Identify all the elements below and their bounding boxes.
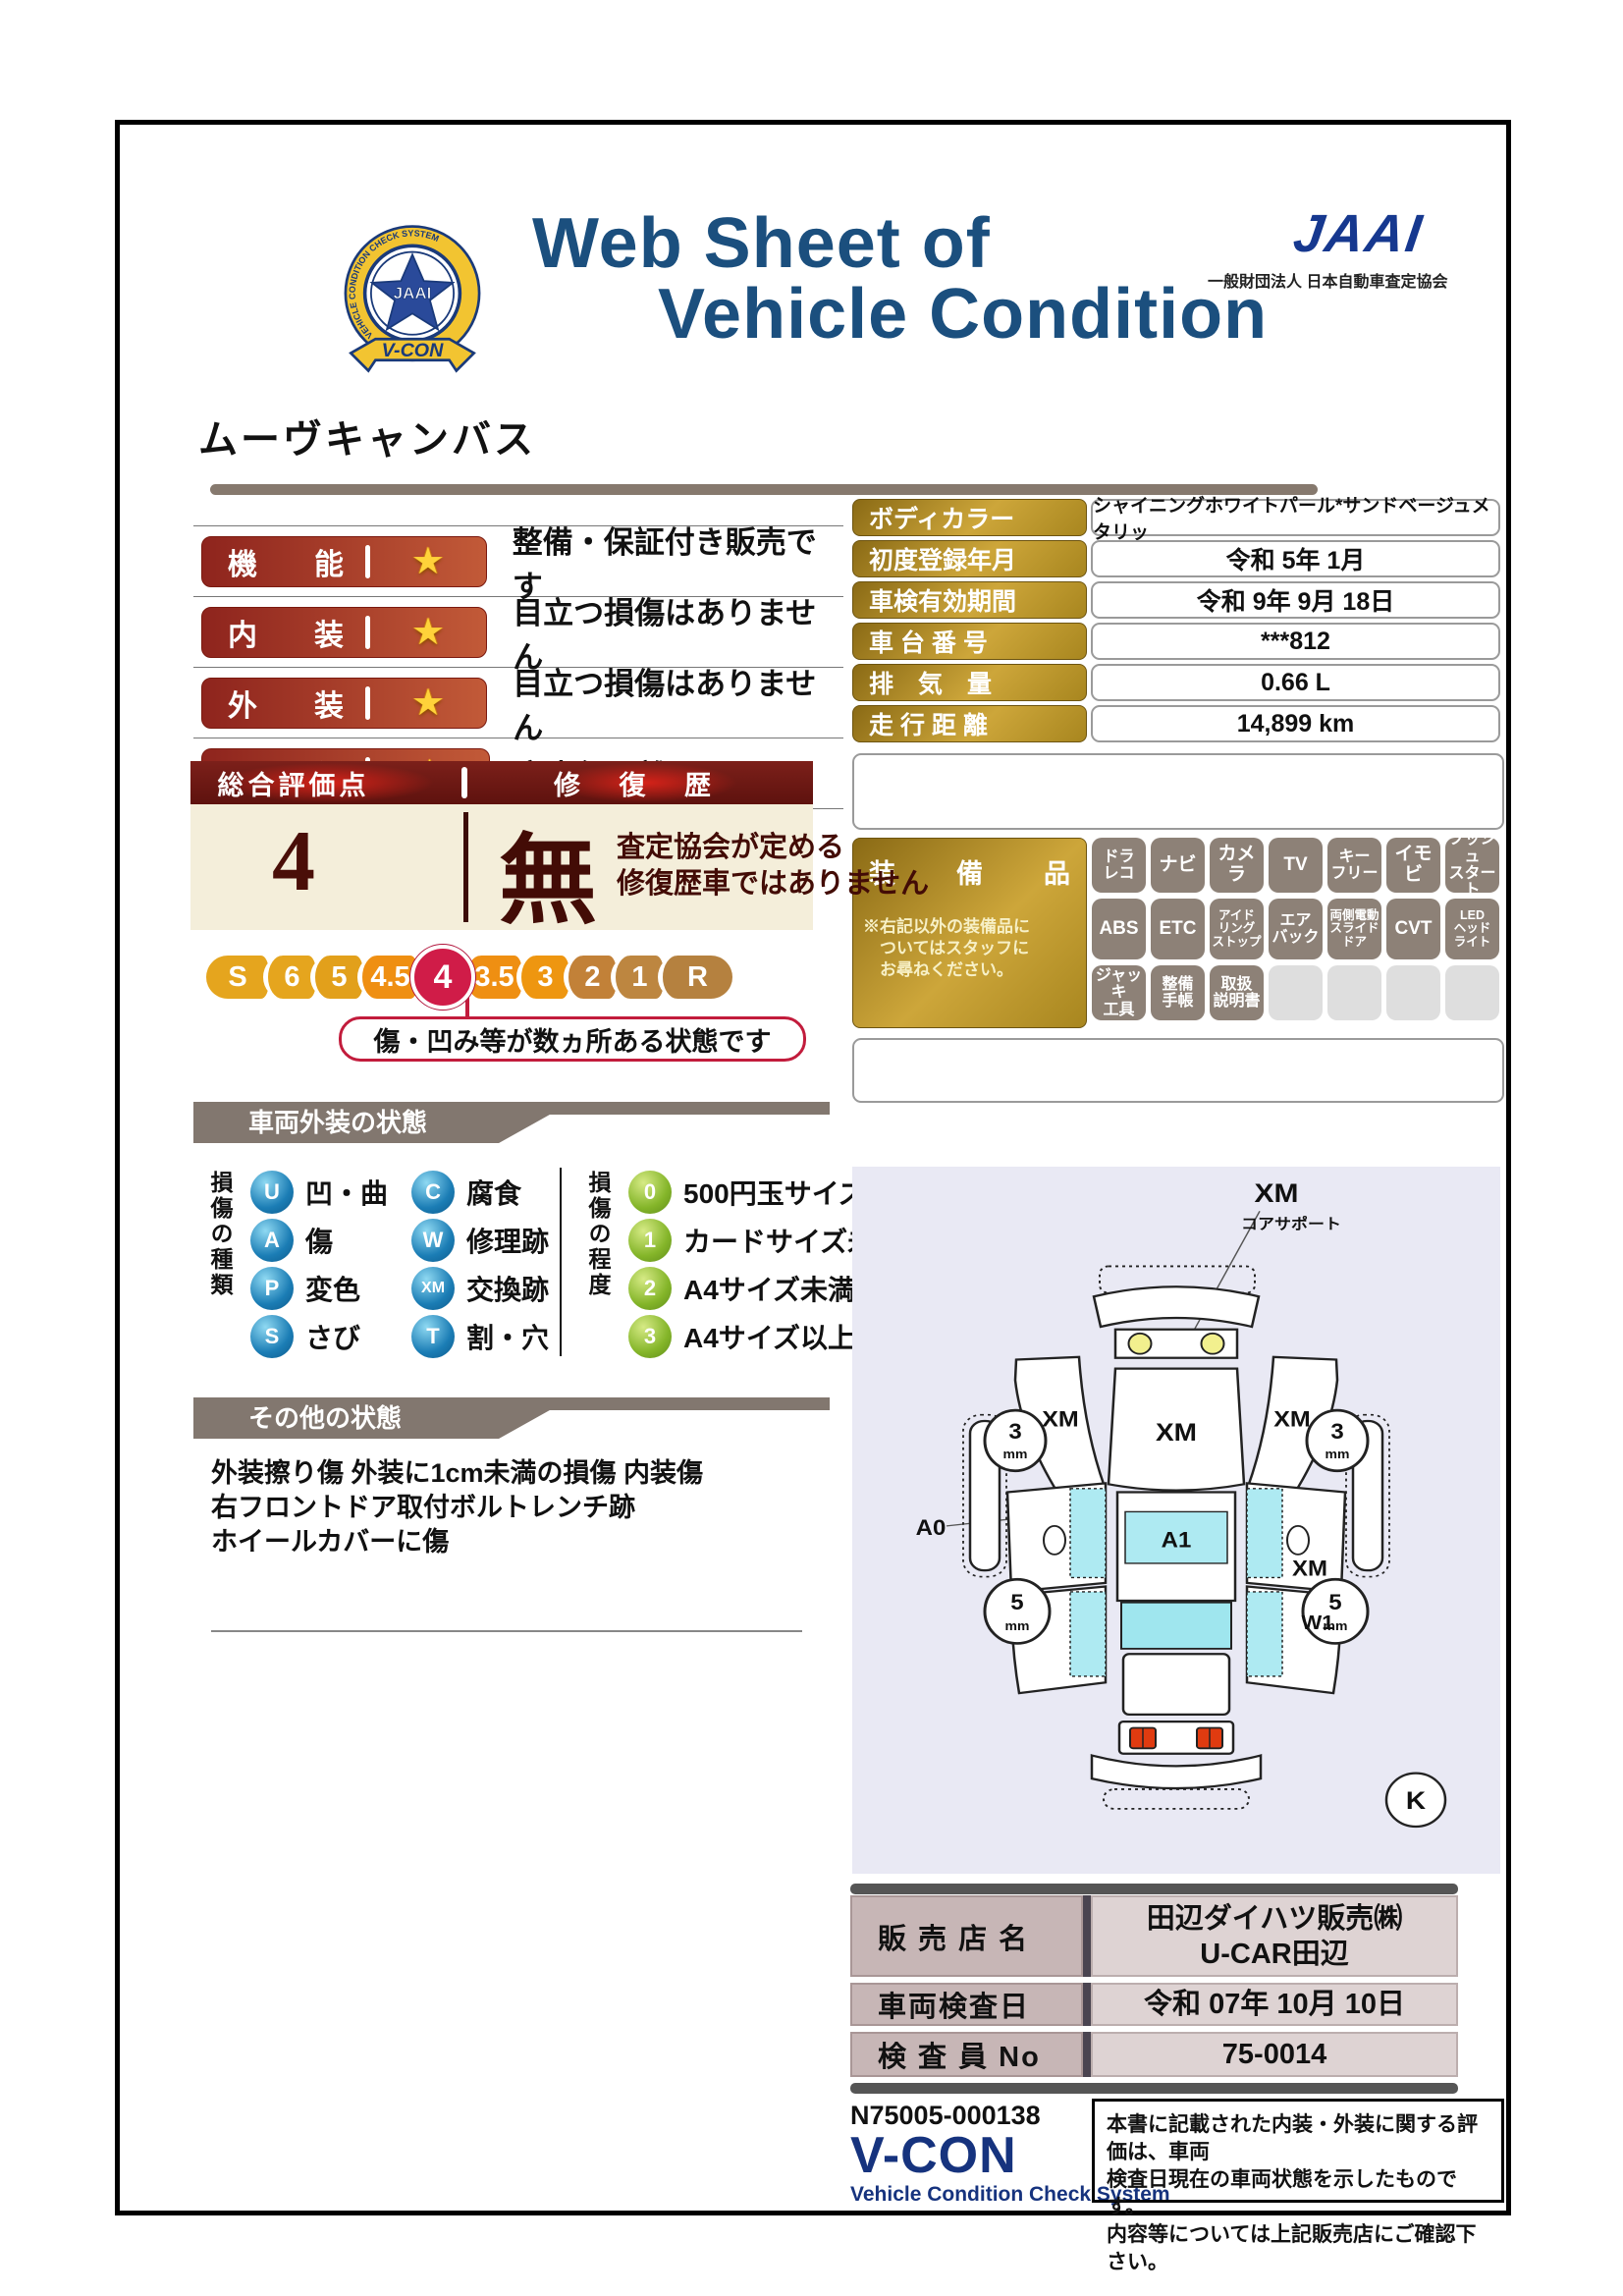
legend-text: さび [305, 1317, 360, 1356]
rating-label-char: 外 [228, 682, 257, 725]
equipment-badge-line: ジャッキ [1092, 967, 1146, 1002]
legend-code-icon: P [250, 1267, 294, 1310]
svg-text:mm: mm [1003, 1448, 1028, 1461]
rating-badge: 外装★ [201, 678, 487, 729]
equipment-grid: ドラレコナビカメラTVキーフリーイモビプッシュスタートABSETCアイドリングス… [1092, 838, 1500, 1020]
equipment-badge: TV [1269, 838, 1323, 893]
rating-label-char: 内 [228, 611, 257, 654]
equipment-badge-line: 説明書 [1213, 993, 1260, 1010]
equipment-badge: エアバック [1269, 899, 1323, 959]
roof-front-mark: A1 [1162, 1528, 1192, 1553]
dealer-row-label: 販 売 店 名 [850, 1895, 1083, 1977]
legend-code-icon: T [411, 1315, 455, 1358]
legend-divider [560, 1168, 562, 1356]
core-support-label: コアサポート [1241, 1215, 1341, 1232]
equipment-badge-line: カメラ [1210, 845, 1264, 885]
legend-text: A4サイズ以上 [683, 1317, 855, 1356]
score-callout: 傷・凹み等が数ヵ所ある状態です [339, 1016, 806, 1062]
legend-code-icon: U [250, 1171, 294, 1214]
equipment-badge: アイドリングストップ [1210, 899, 1264, 959]
rating-label-char: 装 [314, 682, 344, 725]
rating-badge: 機能★ [201, 536, 487, 587]
damage-type-label: 損傷の種類 [203, 1171, 237, 1357]
headlight-icon [1129, 1334, 1152, 1354]
rating-badge: 内装★ [201, 607, 487, 658]
svg-text:3: 3 [1330, 1419, 1343, 1444]
dealer-value-line: 田辺ダイハツ販売㈱ [1147, 1901, 1402, 1937]
equipment-badge-line: ストップ [1212, 936, 1261, 950]
equipment-badge: ドラレコ [1092, 838, 1146, 893]
corner-mark: K [1406, 1786, 1427, 1814]
jaai-logo: JAAI [1290, 203, 1428, 264]
equipment-badge-line: LED [1460, 909, 1485, 923]
legend-text: 割・穴 [466, 1317, 549, 1356]
other-section-header: その他の状態 [193, 1397, 830, 1439]
info-value: 令和 9年 9月 18日 [1091, 581, 1500, 619]
equipment-badge-line: ナビ [1159, 855, 1196, 876]
legend-item: XM交換跡 [411, 1264, 549, 1312]
dealer-row-value: 田辺ダイハツ販売㈱U-CAR田辺 [1091, 1895, 1458, 1977]
rating-label-char: 能 [314, 540, 344, 583]
legend-text: 交換跡 [466, 1269, 549, 1308]
equipment-badge-line: ヘッド [1454, 922, 1491, 936]
dealer-row-divider [1083, 2032, 1091, 2077]
equipment-slot-empty [1445, 965, 1499, 1020]
equipment-badge-line: TV [1283, 855, 1307, 876]
scale-segment: 6 [263, 956, 316, 999]
equipment-badge-line: 取扱 [1220, 976, 1252, 993]
info-label: 排 気 量 [852, 664, 1087, 701]
equipment-badge-line: ドラ [1103, 848, 1134, 865]
equipment-badge: ナビ [1151, 838, 1205, 893]
rating-description: 目立つ損傷はありません [513, 659, 843, 747]
equipment-badge: 整備手帳 [1151, 965, 1205, 1020]
scale-segment: 2 [564, 956, 617, 999]
info-row: 走 行 距 離14,899 km [852, 705, 1500, 742]
legend-code-icon: C [411, 1171, 455, 1214]
equipment-badge: CVT [1386, 899, 1440, 959]
damage-type-legend: U凹・曲A傷P変色SさびC腐食W修理跡XM交換跡T割・穴 [250, 1168, 549, 1360]
vcon-badge-logo: VEHICLE CONDITION CHECK SYSTEM JAAI V-CO… [324, 223, 501, 392]
dealer-value-line: U-CAR田辺 [1200, 1937, 1348, 1972]
right-side-mark: XM [1292, 1557, 1327, 1581]
dealer-row: 車両検査日令和 07年 10月 10日 [850, 1983, 1458, 2026]
equipment-badge: LEDヘッドライト [1445, 899, 1499, 959]
equipment-badge-line: 両側電動 [1329, 909, 1379, 923]
remarks-empty-box [852, 753, 1504, 830]
repair-history-label: 修 復 歴 [467, 764, 813, 802]
equipment-badge-line: CVT [1395, 919, 1433, 940]
equipment-badge: プッシュスタート [1445, 838, 1499, 893]
rating-label: 外装 [228, 682, 344, 725]
star-icon: ★ [370, 681, 486, 725]
car-damage-diagram: XM コアサポート XM XM XM A1 XM W1 A0 3 mm 3 mm… [852, 1167, 1500, 1874]
legend-item: Sさび [250, 1312, 388, 1360]
equipment-badge-line: スタート [1445, 865, 1499, 900]
equipment-badge-line: キー [1338, 848, 1370, 865]
svg-text:mm: mm [1324, 1618, 1348, 1632]
equipment-badge-line: ABS [1099, 919, 1138, 940]
vcon-wordmark: V-CON [850, 2126, 1017, 2185]
footer-note-box: 本書に記載された内装・外装に関する評価は、車両 検査日現在の車両状態を示したもの… [1092, 2099, 1504, 2203]
scale-segment: 5 [310, 956, 363, 999]
scale-segment: 4.5 [357, 956, 418, 999]
equipment-note: ※右記以外の装備品に ついてはスタッフに お尋ねください。 [863, 916, 1078, 981]
equipment-badge: カメラ [1210, 838, 1264, 893]
equipment-badge: ABS [1092, 899, 1146, 959]
svg-text:5: 5 [1328, 1590, 1342, 1614]
legend-text: 修理跡 [466, 1221, 549, 1260]
dealer-row: 販 売 店 名田辺ダイハツ販売㈱U-CAR田辺 [850, 1895, 1458, 1977]
legend-code-icon: S [250, 1315, 294, 1358]
equipment-badge: ジャッキ工具 [1092, 965, 1146, 1020]
dealer-row-divider [1083, 1895, 1091, 1977]
equipment-badge-line: プッシュ [1445, 831, 1499, 865]
legend-item: P変色 [250, 1264, 388, 1312]
equipment-slot-empty [1327, 965, 1381, 1020]
svg-text:mm: mm [1325, 1448, 1350, 1461]
page-title-line1: Web Sheet of [532, 203, 991, 284]
badge-star-text: JAAI [394, 284, 432, 302]
damage-degree-label: 損傷の程度 [581, 1171, 615, 1357]
equipment-badge-line: ドア [1342, 936, 1367, 950]
dealer-value-line: 令和 07年 10月 10日 [1144, 1987, 1405, 2022]
dealer-row-value: 75-0014 [1091, 2032, 1458, 2077]
info-row: 車 台 番 号***812 [852, 623, 1500, 660]
vehicle-name: ムーヴキャンバス [198, 408, 536, 465]
legend-text: 傷 [305, 1221, 333, 1260]
legend-code-icon: XM [411, 1267, 455, 1310]
info-value: 0.66 L [1091, 664, 1500, 701]
info-row: 初度登録年月令和 5年 1月 [852, 540, 1500, 577]
legend-code-icon: 1 [628, 1219, 672, 1262]
dealer-value-line: 75-0014 [1222, 2037, 1326, 2072]
info-row: ボディカラーシャイニングホワイトパール*サンドベージュメタリッ [852, 499, 1500, 536]
star-icon: ★ [370, 610, 486, 654]
page-title-line2: Vehicle Condition [658, 274, 1268, 355]
info-label: 車 台 番 号 [852, 623, 1087, 660]
rating-row: 外装★目立つ損傷はありません [193, 667, 843, 738]
equipment-badge: キーフリー [1327, 838, 1381, 893]
equipment-badge-line: 工具 [1103, 1002, 1134, 1018]
scale-segment: S [206, 956, 269, 999]
dealer-row-value: 令和 07年 10月 10日 [1091, 1983, 1458, 2026]
equipment-badge: 取扱説明書 [1210, 965, 1264, 1020]
core-support-code: XM [1255, 1178, 1299, 1208]
scale-selected-score: 4 [410, 945, 475, 1010]
rating-row: 機能★整備・保証付き販売です [193, 525, 843, 596]
svg-text:mm: mm [1005, 1618, 1030, 1632]
legend-text: 腐食 [466, 1173, 521, 1212]
info-label: 車検有効期間 [852, 581, 1087, 619]
legend-code-icon: W [411, 1219, 455, 1262]
dealer-row-label: 検 査 員 No [850, 2032, 1083, 2077]
equipment-badge-line: エア [1279, 912, 1311, 929]
equipment-badge-line: フリー [1330, 865, 1378, 882]
legend-code-icon: A [250, 1219, 294, 1262]
equipment-badge-line: バック [1271, 929, 1319, 946]
rear-wheel-size: 5 [1010, 1590, 1024, 1614]
rating-label: 機能 [228, 540, 344, 583]
left-column-rule [211, 1630, 802, 1632]
hood-mark: XM [1156, 1418, 1197, 1446]
dealer-row: 検 査 員 No75-0014 [850, 2032, 1458, 2077]
equipment-badge-line: リング [1218, 922, 1256, 936]
overall-body-divider [463, 812, 468, 922]
equipment-badge: ETC [1151, 899, 1205, 959]
equipment-badge-line: 整備 [1162, 976, 1193, 993]
equipment-badge-line: ETC [1160, 919, 1197, 940]
dealer-row-divider [1083, 1983, 1091, 2026]
equipment-badge-line: レコ [1103, 865, 1134, 882]
front-wheel-size: 3 [1008, 1419, 1021, 1444]
legend-text: A4サイズ未満 [683, 1269, 855, 1308]
info-row: 排 気 量0.66 L [852, 664, 1500, 701]
legend-item: C腐食 [411, 1168, 549, 1216]
scale-segment: 3 [516, 956, 569, 999]
rating-label-char: 装 [314, 611, 344, 654]
overall-score-value: 4 [190, 812, 397, 911]
left-fender-mark: XM [1042, 1407, 1078, 1433]
right-fender-mark: XM [1273, 1407, 1310, 1433]
overall-score-label: 総合評価点 [190, 764, 397, 802]
exterior-section-header: 車両外装の状態 [193, 1102, 830, 1143]
dealer-table-top-bar [850, 1884, 1458, 1894]
equipment-slot-empty [1386, 965, 1440, 1020]
equipment-badge: イモビ [1386, 838, 1440, 893]
repair-history-note: 査定協会が定める 修復歴車ではありません [617, 830, 929, 902]
dealer-row-label: 車両検査日 [850, 1983, 1083, 2026]
sheet-page: VEHICLE CONDITION CHECK SYSTEM JAAI V-CO… [115, 120, 1511, 2215]
info-value: シャイニングホワイトパール*サンドベージュメタリッ [1091, 499, 1500, 536]
info-label: ボディカラー [852, 499, 1087, 536]
equipment-empty-box [852, 1038, 1504, 1103]
equipment-badge: 両側電動スライドドア [1327, 899, 1381, 959]
info-row: 車検有効期間令和 9年 9月 18日 [852, 581, 1500, 619]
legend-item: U凹・曲 [250, 1168, 388, 1216]
scale-segment: 1 [611, 956, 664, 999]
jaai-subtitle: 一般財団法人 日本自動車査定協会 [1208, 268, 1447, 292]
star-icon: ★ [370, 539, 486, 583]
rating-row: 内装★目立つ損傷はありません [193, 596, 843, 667]
info-value: 14,899 km [1091, 705, 1500, 742]
dealer-table-bottom-bar [850, 2083, 1458, 2094]
info-value: 令和 5年 1月 [1091, 540, 1500, 577]
legend-item: W修理跡 [411, 1216, 549, 1264]
info-label: 初度登録年月 [852, 540, 1087, 577]
equipment-badge-line: ライト [1454, 936, 1491, 950]
info-value: ***812 [1091, 623, 1500, 660]
legend-text: 凹・曲 [305, 1173, 388, 1212]
badge-vcon-text: V-CON [382, 340, 444, 361]
vehicle-info-table: ボディカラーシャイニングホワイトパール*サンドベージュメタリッ初度登録年月令和 … [852, 499, 1500, 746]
legend-item: A傷 [250, 1216, 388, 1264]
legend-code-icon: 3 [628, 1315, 672, 1358]
rating-label-char: 機 [228, 540, 257, 583]
equipment-slot-empty [1269, 965, 1323, 1020]
legend-item: T割・穴 [411, 1312, 549, 1360]
equipment-badge-line: 手帳 [1162, 993, 1193, 1010]
scale-segment: R [658, 956, 732, 999]
rating-label: 内装 [228, 611, 344, 654]
headlight-icon [1202, 1334, 1224, 1354]
equipment-badge-line: スライド [1329, 922, 1379, 936]
legend-code-icon: 0 [628, 1171, 672, 1214]
legend-code-icon: 2 [628, 1267, 672, 1310]
repair-history-value: 無 [499, 800, 597, 943]
equipment-badge-line: イモビ [1386, 845, 1440, 885]
info-label: 走 行 距 離 [852, 705, 1087, 742]
left-rear-mark: A0 [916, 1515, 947, 1540]
overall-score-header: 総合評価点 修 復 歴 [190, 761, 813, 804]
legend-text: 変色 [305, 1269, 360, 1308]
other-condition-text: 外装擦り傷 外装に1cm未満の損傷 内装傷 右フロントドア取付ボルトレンチ跡 ホ… [211, 1456, 703, 1559]
score-scale: S654.543.5321R [206, 955, 732, 1000]
